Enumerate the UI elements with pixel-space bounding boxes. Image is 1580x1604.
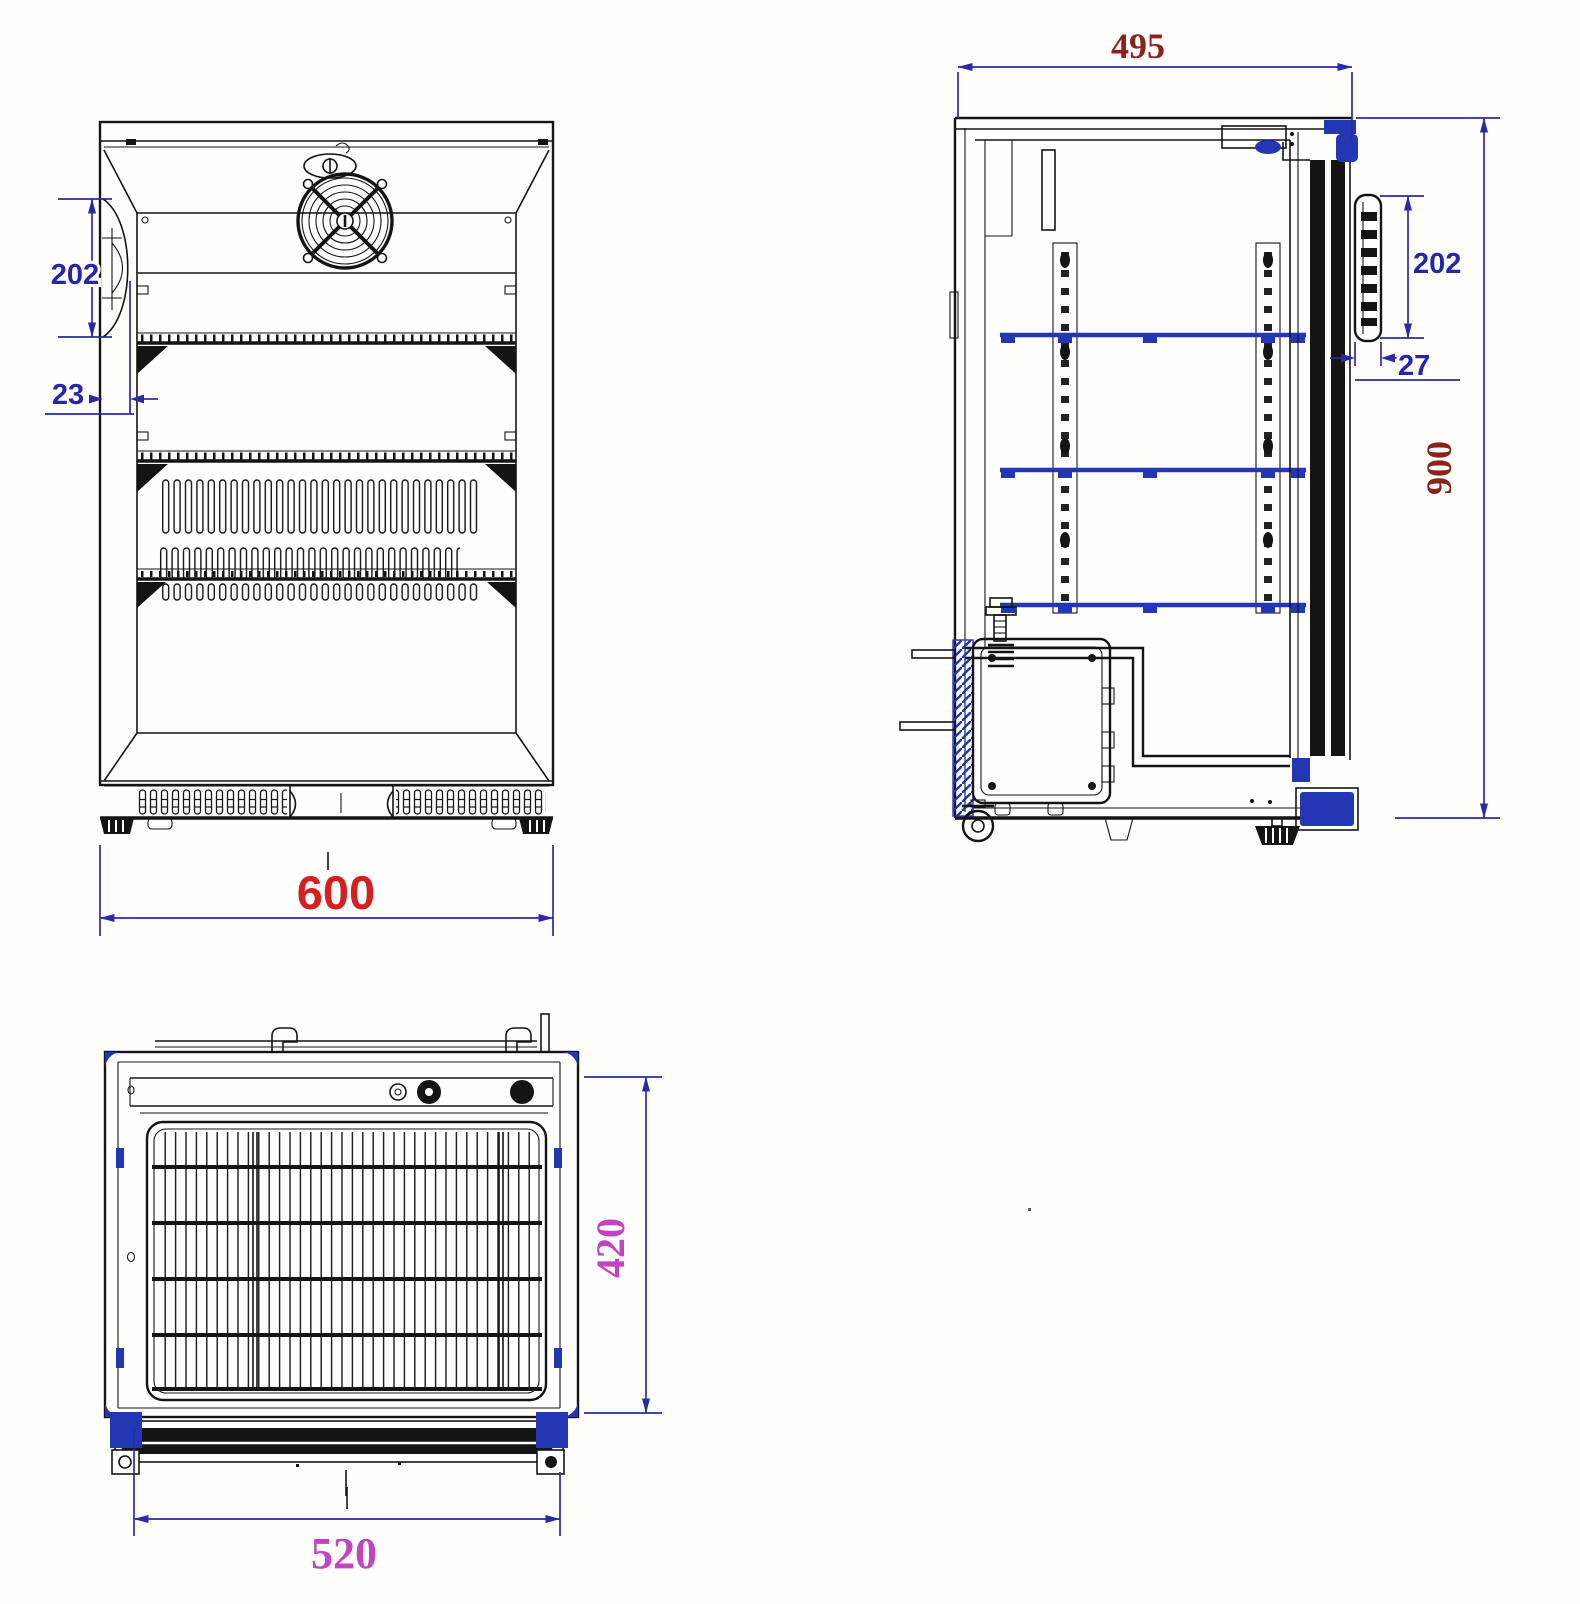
side-shelves xyxy=(1000,335,1306,613)
dim-label-front-handle-height: 202 xyxy=(51,259,99,291)
leveling-foot-icon xyxy=(1255,818,1300,845)
dim-label-front-handle-depth: 23 xyxy=(52,379,84,411)
front-base xyxy=(100,733,553,818)
side-view: 495 202 27 900 xyxy=(900,26,1500,845)
dimension-front-handle-height: 202 xyxy=(51,199,112,337)
front-vent-slots xyxy=(158,478,479,602)
thermostat-knob-right xyxy=(510,1080,534,1104)
dimension-side-handle-height: 202 xyxy=(1380,196,1461,338)
front-door-handle-bulge xyxy=(102,199,128,337)
top-hinge-left xyxy=(110,1412,142,1448)
dimension-side-depth: 495 xyxy=(958,26,1352,140)
stray-mark xyxy=(1028,1208,1031,1211)
pipe-lower xyxy=(900,722,955,730)
top-door-bar xyxy=(110,1412,568,1496)
dim-label-side-handle-depth: 27 xyxy=(1398,350,1430,382)
three-view-drawing: 600 202 23 xyxy=(0,0,1580,1604)
dim-label-front-width: 600 xyxy=(297,866,375,919)
front-feet xyxy=(100,818,553,834)
door-bottom-hinge xyxy=(1292,758,1358,830)
shelf-rail-left xyxy=(1053,243,1077,613)
door-handle-side xyxy=(1355,195,1381,341)
technical-drawing-canvas: 600 202 23 xyxy=(0,0,1580,1604)
top-hinge-right xyxy=(536,1412,568,1448)
dim-label-top-door-width: 520 xyxy=(311,1529,377,1578)
fan-icon xyxy=(298,174,392,268)
front-panels xyxy=(137,273,516,440)
dimension-side-height: 900 xyxy=(1356,118,1500,818)
pipe-upper xyxy=(912,650,955,658)
base-bracket xyxy=(1105,818,1133,840)
dimension-front-width: 600 xyxy=(100,845,553,936)
kick-vent-left xyxy=(137,789,287,816)
kick-vent-right xyxy=(396,789,546,816)
dim-label-top-depth: 420 xyxy=(588,1218,633,1278)
dimension-top-depth: 420 xyxy=(584,1077,662,1413)
caster-wheel-icon xyxy=(962,800,994,841)
dim-label-side-height: 900 xyxy=(1419,441,1459,495)
compressor-compartment xyxy=(900,598,1290,840)
front-shelf-1 xyxy=(137,333,516,374)
insulation-hatch xyxy=(953,640,973,816)
thermostat-knob-small xyxy=(390,1084,406,1100)
front-view: 600 202 23 xyxy=(45,122,553,936)
dim-label-side-depth: 495 xyxy=(1111,26,1165,66)
hinge-pin xyxy=(541,1014,549,1052)
top-back-panel xyxy=(130,1078,553,1113)
hinge-hook-left xyxy=(272,1028,297,1052)
hinge-hook-right xyxy=(506,1028,531,1052)
door-top-hinge xyxy=(1324,120,1358,162)
top-view: 420 520 xyxy=(105,1014,662,1578)
wire-shelf xyxy=(147,1122,546,1400)
dim-label-side-handle-height: 202 xyxy=(1413,248,1461,280)
shelf-rail-right xyxy=(1256,243,1280,613)
